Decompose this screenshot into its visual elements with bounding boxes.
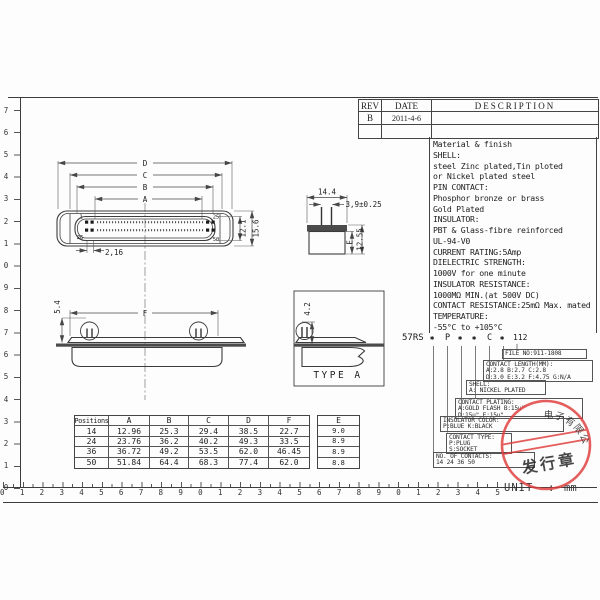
ruler-number: 3	[4, 417, 9, 426]
table-cell: 40.2	[189, 437, 229, 447]
col-header: D	[229, 416, 269, 426]
ruler-number: 9	[376, 488, 381, 497]
table-cell: 24	[75, 437, 109, 447]
ruler-number: 1	[218, 488, 223, 497]
table-cell: 62.0	[269, 458, 309, 468]
part-number-field: ✱	[430, 334, 434, 342]
ruler-number: 4	[476, 488, 481, 497]
callout-title: FILE NO:911-1808	[505, 351, 584, 357]
front-view: 1 25 26 50 D C B A	[57, 159, 261, 257]
spec-line: -55°C to +105°C	[433, 322, 596, 333]
ruler-number: 3	[456, 488, 461, 497]
dim-pitch-label: 2,16	[105, 248, 124, 257]
table-cell: 36	[75, 447, 109, 457]
part-number-field: ✱	[458, 334, 462, 342]
profile-view: F 5.4	[53, 300, 246, 367]
dim-c-label: C	[143, 171, 148, 180]
dim-pin-pitch-label: 3,9±0.25	[346, 200, 382, 209]
unit-value: mm	[564, 482, 577, 494]
spec-line: Gold Plated	[433, 204, 596, 215]
ruler-number: 5	[99, 488, 104, 497]
ruler-number: 7	[139, 488, 144, 497]
spec-line: steel Zinc plated,Tin ploted	[433, 161, 596, 172]
ruler-number: 6	[4, 350, 9, 359]
ruler-number: 2	[4, 217, 9, 226]
table-cell: 22.7	[269, 426, 309, 436]
ruler-number: 3	[4, 194, 9, 203]
ruler-number: 1	[416, 488, 421, 497]
rev-header-rev: REV	[359, 100, 382, 112]
table-cell: 23.76	[109, 437, 150, 447]
spec-line: or Nickel plated steel	[433, 171, 596, 182]
rev-header-date: DATE	[382, 100, 432, 112]
dim-12-55-label: 12.55	[356, 228, 365, 251]
ruler-number: 8	[4, 306, 9, 315]
rev-cell	[432, 112, 598, 125]
ruler-number: 0	[198, 488, 203, 497]
ruler-number: 6	[119, 488, 124, 497]
callout-file-no: FILE NO:911-1808	[502, 349, 587, 359]
ruler-number: 2	[4, 439, 9, 448]
spec-line: 1000MΩ MIN.(at 500V DC)	[433, 290, 596, 301]
ruler-number: 8	[159, 488, 164, 497]
spec-line: Material & finish	[433, 139, 596, 150]
spec-line: 1000V for one minute	[433, 268, 596, 279]
revision-table: REV DATE DESCRIPTION B 2011-4-6	[358, 99, 599, 139]
ruler-number: 1	[20, 488, 25, 497]
part-number-field: P	[445, 333, 450, 343]
rev-cell: 2011-4-6	[382, 112, 432, 125]
unit-separator: :	[548, 482, 554, 494]
ruler-number: 3	[258, 488, 263, 497]
pin-contacts	[85, 221, 215, 232]
ruler-number: 5	[297, 488, 302, 497]
table-cell: 62.0	[229, 447, 269, 457]
ruler-number: 4	[4, 395, 9, 404]
callout-insulator-color: INSULATOR COLOR: P:BLUE K:BLACK	[440, 416, 564, 432]
col-header: C	[189, 416, 229, 426]
rev-cell	[359, 125, 382, 138]
ruler-number: 0	[4, 483, 9, 492]
rev-header-description: DESCRIPTION	[432, 100, 598, 112]
table-cell: 68.3	[189, 458, 229, 468]
dim-4-2-label: 4.2	[303, 302, 312, 316]
ruler-number: 6	[317, 488, 322, 497]
part-number-prefix: 57RS	[402, 333, 424, 343]
table-cell: 12.96	[109, 426, 150, 436]
table-cell: 64.4	[150, 458, 189, 468]
spec-line: INSULATOR RESISTANCE:	[433, 279, 596, 290]
ruler-number: 7	[4, 106, 9, 115]
ruler-number: 2	[238, 488, 243, 497]
part-number-row: 57RS ✱ P ✱ ✱ C ✱ 112	[402, 333, 552, 345]
side-view: 14.4 3,9±0.25 E 12.55	[307, 188, 382, 255]
ruler-number: 5	[4, 372, 9, 381]
table-cell: 8.8	[318, 458, 359, 468]
spec-line: CONTACT RESISTANCE:25mΩ Max. mated	[433, 300, 596, 311]
dim-14-4-label: 14.4	[318, 188, 337, 197]
spec-line: DIELECTRIC STRENGTH:	[433, 257, 596, 268]
ruler-left-numbers: 765432109876543210	[1, 106, 11, 493]
ruler-number: 4	[277, 488, 282, 497]
table-cell: 25.3	[150, 426, 189, 436]
dim-d-label: D	[143, 159, 148, 168]
table-cell: 51.84	[109, 458, 150, 468]
spec-line: CURRENT RATING:5Amp	[433, 247, 596, 258]
table-cell: 8.9	[318, 447, 359, 457]
table-cell: 49.2	[150, 447, 189, 457]
table-cell: 9.0	[318, 426, 359, 436]
positions-table: Positions A B C D F 14 12.96 25.3 29.4 3…	[74, 415, 310, 469]
table-cell: 36.72	[109, 447, 150, 457]
part-number-field: C	[487, 333, 492, 343]
rev-cell: B	[359, 112, 382, 125]
spec-line: PBT & Glass-fibre reinforced	[433, 225, 596, 236]
col-header: E	[318, 416, 359, 426]
spec-line: PIN CONTACT:	[433, 182, 596, 193]
table-cell: 49.3	[229, 437, 269, 447]
table-cell: 8.9	[318, 437, 359, 447]
ruler-number: 0	[4, 261, 9, 270]
ruler-number: 5	[495, 488, 500, 497]
ruler-number: 0	[396, 488, 401, 497]
unit-note: UNIT : mm	[504, 482, 596, 496]
table-cell: 77.4	[229, 458, 269, 468]
ruler-number: 2	[40, 488, 45, 497]
col-header: A	[109, 416, 150, 426]
dim-15-6-label: 15.6	[252, 219, 261, 238]
drawing-sheet: 1 25 26 50 D C B A	[0, 0, 600, 600]
spec-line: TEMPERATURE:	[433, 311, 596, 322]
col-header: F	[269, 416, 309, 426]
table-cell: 14	[75, 426, 109, 436]
part-number-field: ✱	[500, 334, 504, 342]
ruler-number: 4	[79, 488, 84, 497]
material-spec-box: Material & finishSHELL:steel Zinc plated…	[429, 137, 597, 333]
table-cell: 46.45	[269, 447, 309, 457]
spec-line: UL-94-V0	[433, 236, 596, 247]
spec-line: Phosphor bronze or brass	[433, 193, 596, 204]
ruler-number: 5	[4, 150, 9, 159]
table-cell: 53.5	[189, 447, 229, 457]
dim-12-1-label: 12.1	[239, 219, 248, 237]
ruler-number: 1	[4, 239, 9, 248]
ruler-number: 2	[436, 488, 441, 497]
callout-shell: SHELL: A: NICKEL PLATED	[466, 380, 546, 396]
pin26-label: 26	[77, 235, 84, 241]
dim-e-label: E	[346, 240, 355, 245]
ruler-number: 3	[59, 488, 64, 497]
callout-contact-type: CONTACT TYPE: P:PLUG S:SOCKET	[446, 433, 512, 454]
ruler-number: 9	[4, 283, 9, 292]
table-cell: 33.5	[269, 437, 309, 447]
table-cell: 36.2	[150, 437, 189, 447]
callout-line: P:BLUE K:BLACK	[443, 424, 561, 430]
ruler-number: 7	[4, 328, 9, 337]
part-number-suffix: 112	[513, 333, 527, 342]
col-header: Positions	[75, 416, 109, 426]
ruler-number: 6	[4, 128, 9, 137]
col-header: B	[150, 416, 189, 426]
table-cell: 29.4	[189, 426, 229, 436]
dim-b-label: B	[143, 183, 148, 192]
rev-cell	[382, 125, 432, 138]
ruler-number: 1	[4, 461, 9, 470]
ruler-number: 9	[178, 488, 183, 497]
callout-line: 14 24 36 50	[436, 460, 532, 466]
callout-no-of-contacts: NO. OF CONTACTS: 14 24 36 50	[433, 452, 535, 468]
dim-5-4-label: 5.4	[53, 300, 62, 314]
type-a-detail: 4.2 TYPE A	[294, 291, 384, 386]
spec-line: SHELL:	[433, 150, 596, 161]
table-cell: 38.5	[229, 426, 269, 436]
unit-label: UNIT	[504, 482, 533, 494]
dim-a-label: A	[143, 195, 148, 204]
callout-line: A: NICKEL PLATED	[469, 388, 543, 394]
pin50-label: 50	[213, 237, 220, 243]
spec-line: INSULATOR:	[433, 214, 596, 225]
ruler-bottom-numbers: 01234567890123456789012345	[0, 488, 500, 497]
table-cell: 50	[75, 458, 109, 468]
pin1-label: 1	[79, 215, 82, 221]
pin25-label: 25	[213, 215, 220, 221]
dim-f-label: F	[143, 309, 148, 318]
positions-table-e-column: E 9.0 8.9 8.9 8.8	[317, 415, 360, 469]
ruler-number: 7	[337, 488, 342, 497]
type-a-label: TYPE A	[313, 370, 362, 381]
ruler-number: 4	[4, 172, 9, 181]
part-number-field: ✱	[472, 334, 476, 342]
ruler-number: 8	[357, 488, 362, 497]
